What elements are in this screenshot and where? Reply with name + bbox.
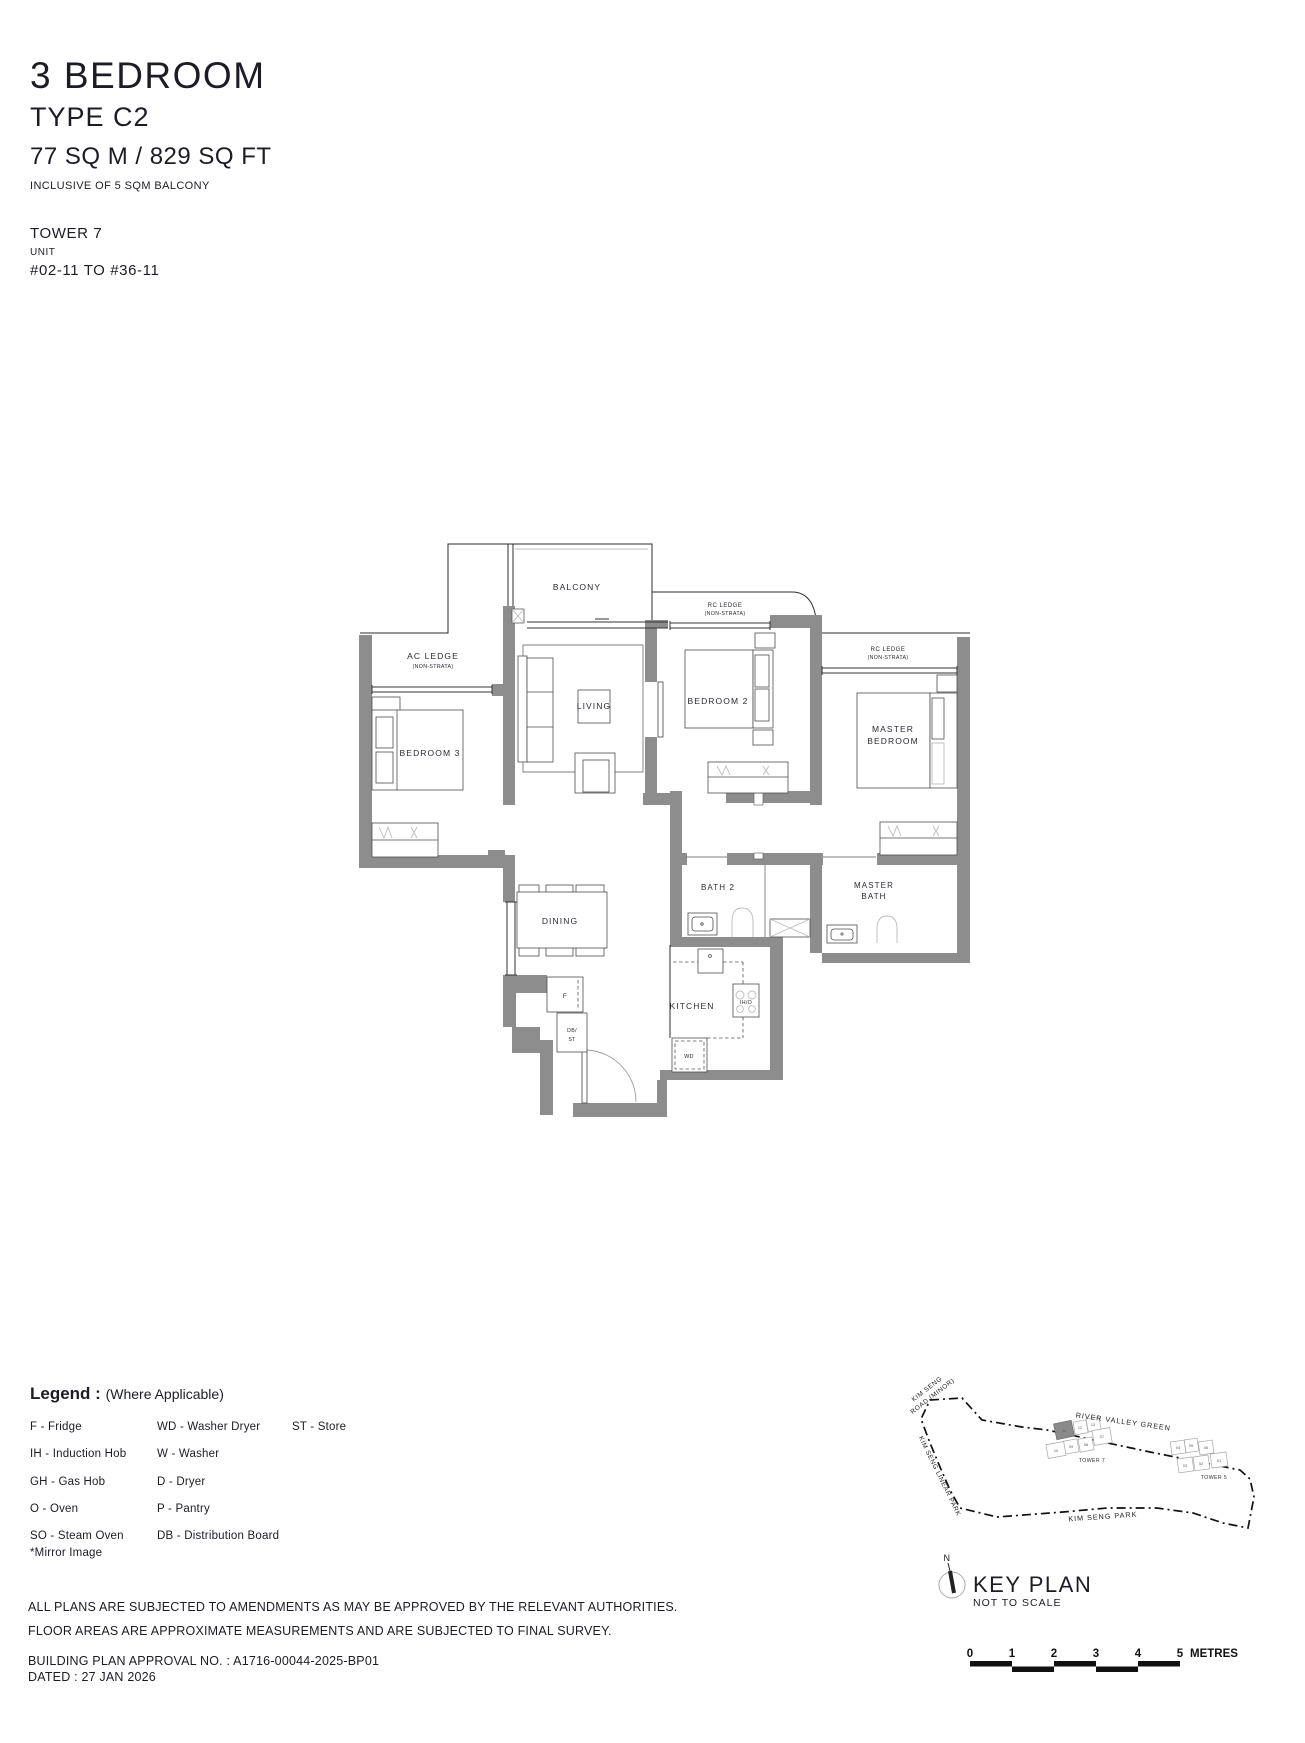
bedroom2-door-leaf xyxy=(658,682,663,737)
room-labels: BALCONY RC LEDGE (NON-STRATA) RC LEDGE (… xyxy=(400,582,919,1060)
floorplan-page: 3 BEDROOM TYPE C2 77 SQ M / 829 SQ FT IN… xyxy=(0,0,1305,1743)
master-bath-fixtures xyxy=(827,916,897,943)
disclaimer-line-2: FLOOR AREAS ARE APPROXIMATE MEASUREMENTS… xyxy=(28,1619,678,1643)
scale-tick: 2 xyxy=(1051,1648,1057,1660)
master-bedroom-furniture xyxy=(857,675,957,855)
page-title: 3 BEDROOM xyxy=(30,55,272,97)
legend-title: Legend : xyxy=(30,1384,101,1403)
balcony-side-wall xyxy=(508,544,513,606)
keyplan-subtitle: NOT TO SCALE xyxy=(973,1597,1061,1609)
unit-number: 12 xyxy=(1078,1426,1082,1430)
legend-subtitle: (Where Applicable) xyxy=(106,1386,224,1402)
rc-ledge-note-1: (NON-STRATA) xyxy=(705,611,746,617)
north-arrow: N xyxy=(939,1553,965,1598)
scale-tick: 3 xyxy=(1093,1648,1099,1660)
unit-number: 07 xyxy=(1100,1435,1104,1439)
legend-item: DB - Distribution Board xyxy=(157,1523,279,1550)
bedroom2-label: BEDROOM 2 xyxy=(688,696,749,706)
scale-tick: 0 xyxy=(967,1648,973,1660)
ac-ledge-label: AC LEDGE xyxy=(407,651,459,661)
tower-label: TOWER 7 xyxy=(30,225,159,242)
db-label: DB/ xyxy=(567,1028,577,1034)
ac-ledge-note: (NON-STRATA) xyxy=(413,664,454,670)
store-label: ST xyxy=(568,1037,576,1043)
tower5-label: TOWER 5 xyxy=(1201,1475,1227,1481)
kitchen-label: KITCHEN xyxy=(669,1001,714,1011)
keyplan-title: KEY PLAN xyxy=(973,1572,1092,1597)
unit-label: UNIT xyxy=(30,247,159,258)
approval-number: BUILDING PLAN APPROVAL NO. : A1716-00044… xyxy=(28,1653,379,1669)
unit-number: 08 xyxy=(1084,1443,1088,1447)
keyplan-road-labels: KIM SENG ROAD (MINOR) RIVER VALLEY GREEN… xyxy=(904,1370,1172,1523)
kitchen-sink xyxy=(698,949,723,973)
unit-number: 01 xyxy=(1217,1459,1221,1463)
rc-ledge-label-1: RC LEDGE xyxy=(708,603,743,609)
living-furniture xyxy=(518,656,615,793)
scale-tick: 5 xyxy=(1177,1648,1184,1660)
kitchen-fittings xyxy=(547,945,759,1072)
legend-item: F - Fridge xyxy=(30,1414,126,1441)
legend-item: ST - Store xyxy=(292,1414,346,1441)
unit-info-block: TOWER 7 UNIT #02-11 TO #36-11 xyxy=(30,225,159,279)
tower5-cluster: 04 05 06 03 02 01 TOWER 5 xyxy=(1170,1438,1228,1481)
unit-number: 03 xyxy=(1183,1464,1187,1468)
tower7-cluster: 11 12 13 07 08 09 10 TOWER 7 xyxy=(1046,1417,1112,1464)
legend-column-2: WD - Washer Dryer W - Washer D - Dryer P… xyxy=(157,1414,279,1550)
tower7-label: TOWER 7 xyxy=(1079,1458,1105,1464)
washer-dryer-label: WD xyxy=(684,1054,693,1060)
unit-number: 04 xyxy=(1176,1446,1180,1450)
bath2-fixtures xyxy=(688,908,753,937)
unit-number: 13 xyxy=(1091,1423,1095,1427)
approval-date: DATED : 27 JAN 2026 xyxy=(28,1669,379,1685)
unit-number: 10 xyxy=(1054,1449,1058,1453)
fridge-label: F xyxy=(563,993,567,1000)
legend-item: GH - Gas Hob xyxy=(30,1469,126,1496)
unit-number: 06 xyxy=(1204,1446,1208,1450)
mirror-image-note: *Mirror Image xyxy=(30,1547,102,1559)
hob-label: IH/O xyxy=(740,1000,752,1006)
unit-type: TYPE C2 xyxy=(30,102,272,133)
approval-block: BUILDING PLAN APPROVAL NO. : A1716-00044… xyxy=(28,1653,379,1685)
legend-item: D - Dryer xyxy=(157,1469,279,1496)
north-label: N xyxy=(944,1553,951,1563)
kim-seng-park-label: KIM SENG PARK xyxy=(1068,1510,1138,1524)
unit-number: 02 xyxy=(1199,1462,1203,1466)
scale-tick: 1 xyxy=(1009,1648,1016,1660)
legend-item: WD - Washer Dryer xyxy=(157,1414,279,1441)
unit-number: 09 xyxy=(1069,1445,1073,1449)
key-plan: 11 12 13 07 08 09 10 TOWER 7 04 05 06 03… xyxy=(830,1355,1270,1620)
legend-item: W - Washer xyxy=(157,1441,279,1468)
bedroom3-furniture xyxy=(372,697,463,857)
scale-bar: 0 1 2 3 4 5 METRES xyxy=(850,1640,1300,1680)
floorplan-drawing: BALCONY RC LEDGE (NON-STRATA) RC LEDGE (… xyxy=(355,485,975,1120)
rc-ledge-note-2: (NON-STRATA) xyxy=(868,655,909,661)
rc-ledge-label-2: RC LEDGE xyxy=(871,647,906,653)
scale-unit: METRES xyxy=(1190,1648,1238,1660)
bath2-label: BATH 2 xyxy=(701,883,735,892)
unit-area: 77 SQ M / 829 SQ FT xyxy=(30,143,272,171)
kim-seng-linear-park-label: KIM SENG LINEAR PARK xyxy=(917,1435,962,1517)
master-bedroom-label-1: MASTER xyxy=(872,724,914,734)
scale-tick: 4 xyxy=(1135,1648,1142,1660)
balcony-label: BALCONY xyxy=(553,582,601,592)
legend-item: P - Pantry xyxy=(157,1496,279,1523)
doors xyxy=(582,682,876,1103)
disclaimer-line-1: ALL PLANS ARE SUBJECTED TO AMENDMENTS AS… xyxy=(28,1595,678,1619)
unit-range: #02-11 TO #36-11 xyxy=(30,262,159,279)
unit-number: 05 xyxy=(1189,1444,1193,1448)
disclaimer-block: ALL PLANS ARE SUBJECTED TO AMENDMENTS AS… xyxy=(28,1595,678,1643)
shaft-box xyxy=(770,919,810,937)
living-label: LIVING xyxy=(577,701,611,711)
legend-column-3: ST - Store xyxy=(292,1414,346,1441)
legend-item: IH - Induction Hob xyxy=(30,1441,126,1468)
unit-number: 11 xyxy=(1062,1429,1066,1433)
master-bedroom-label-2: BEDROOM xyxy=(867,736,919,746)
walls xyxy=(359,606,970,1117)
master-bath-label-2: BATH xyxy=(861,892,886,901)
entrance-door-swing xyxy=(587,1050,636,1102)
legend-column-1: F - Fridge IH - Induction Hob GH - Gas H… xyxy=(30,1414,126,1550)
bedroom2-furniture xyxy=(685,633,788,793)
master-bath-label-1: MASTER xyxy=(854,881,894,890)
area-note: INCLUSIVE OF 5 SQM BALCONY xyxy=(30,180,272,192)
title-block: 3 BEDROOM TYPE C2 77 SQ M / 829 SQ FT IN… xyxy=(30,55,272,192)
bedroom3-label: BEDROOM 3 xyxy=(400,748,461,758)
entrance-door-leaf xyxy=(582,1049,587,1103)
dining-label: DINING xyxy=(542,916,578,926)
legend-heading: Legend : (Where Applicable) xyxy=(30,1384,224,1404)
legend-item: O - Oven xyxy=(30,1496,126,1523)
